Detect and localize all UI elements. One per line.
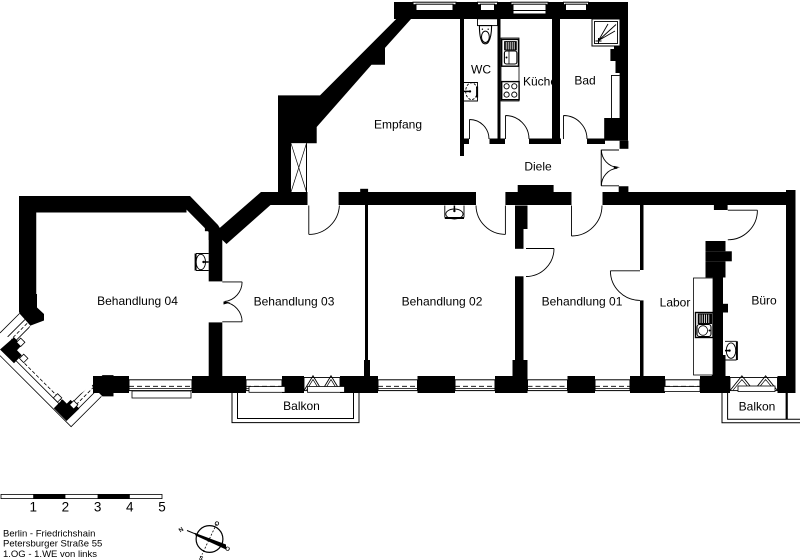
svg-text:Diele: Diele <box>524 160 552 174</box>
svg-text:3: 3 <box>94 500 102 515</box>
svg-text:Balkon: Balkon <box>283 399 320 413</box>
svg-text:Bad: Bad <box>574 74 595 88</box>
svg-text:5: 5 <box>158 500 166 515</box>
svg-text:Büro: Büro <box>751 294 777 308</box>
svg-text:Behandlung 03: Behandlung 03 <box>254 295 335 309</box>
svg-text:1: 1 <box>29 500 37 515</box>
svg-text:2: 2 <box>62 500 70 515</box>
svg-text:Empfang: Empfang <box>374 118 422 132</box>
svg-text:1.OG - 1.WE von links: 1.OG - 1.WE von links <box>3 549 97 560</box>
svg-text:WC: WC <box>471 63 491 77</box>
svg-text:Balkon: Balkon <box>739 400 776 414</box>
svg-text:Labor: Labor <box>660 296 691 310</box>
svg-text:Petersburger Straße 55: Petersburger Straße 55 <box>3 539 102 550</box>
svg-text:Behandlung 02: Behandlung 02 <box>402 295 483 309</box>
svg-text:Behandlung 01: Behandlung 01 <box>542 295 623 309</box>
svg-text:Behandlung 04: Behandlung 04 <box>97 294 178 308</box>
svg-text:Küche: Küche <box>523 75 557 89</box>
svg-text:4: 4 <box>126 500 134 515</box>
